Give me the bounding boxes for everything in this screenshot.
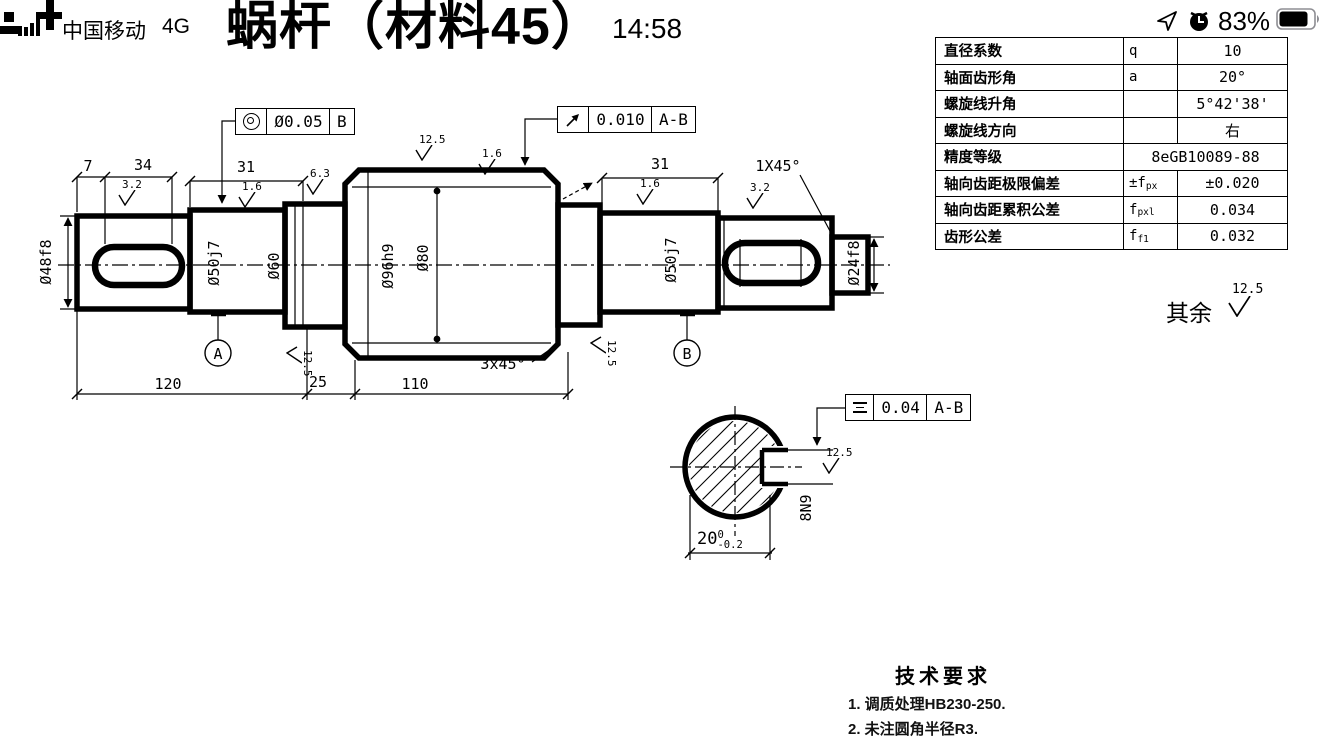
fcf-datum: A-B <box>651 106 696 133</box>
param-value: 5°42'38' <box>1178 91 1287 117</box>
remaining-surfaces-label: 其余 <box>1166 294 1212 328</box>
param-symbol: a <box>1124 65 1178 91</box>
roughness-check-icon <box>822 458 842 474</box>
param-symbol: ±fpx <box>1124 171 1178 197</box>
symmetry-icon <box>853 402 867 412</box>
screenshot-root: 中国移动 4G 蜗杆（材料45） 14:58 83% 直径系数 q 10 轴面齿… <box>0 0 1334 750</box>
roughness-value: 1.6 <box>640 179 660 189</box>
fcf-tolerance: Ø0.05 <box>266 108 330 135</box>
battery-percent-label: 83% <box>1218 6 1270 37</box>
roughness-check-icon <box>590 336 606 356</box>
param-label: 直径系数 <box>936 38 1124 64</box>
table-row: 轴面齿形角 a 20° <box>936 65 1287 92</box>
cutoff-text-fragment <box>4 12 14 22</box>
roughness-mark: 1.6 <box>238 182 268 208</box>
fcf-symmetry: 0.04 A-B <box>845 394 971 421</box>
roughness-value: 1.6 <box>482 149 502 159</box>
roughness-check-icon <box>118 190 138 206</box>
roughness-value: 12.5 <box>419 135 446 145</box>
roughness-check-icon <box>1228 296 1254 317</box>
dim-34: 34 <box>134 156 152 174</box>
roughness-check-icon <box>478 159 498 175</box>
fcf-datum: B <box>329 108 355 135</box>
page-title: 蜗杆（材料45） <box>226 0 604 59</box>
param-value: 0.034 <box>1178 197 1287 223</box>
roughness-value: 12.5 <box>1232 284 1263 296</box>
battery-icon <box>1276 8 1322 30</box>
param-value: 20° <box>1178 65 1287 91</box>
param-label: 齿形公差 <box>936 224 1124 250</box>
dim-20-toleranced: 20 0 -0.2 <box>697 531 743 550</box>
param-label: 螺旋线方向 <box>936 118 1124 144</box>
roughness-value: 12.5 <box>826 448 853 458</box>
dim-31-left: 31 <box>237 158 255 176</box>
dim-110: 110 <box>401 375 428 393</box>
tech-requirements-title: 技术要求 <box>895 660 991 689</box>
roughness-value: 12.5 <box>302 350 312 377</box>
param-label: 轴向齿距极限偏差 <box>936 171 1124 197</box>
roughness-mark: 12.5 <box>415 135 445 161</box>
dim-31-right: 31 <box>651 155 669 173</box>
alarm-clock-icon <box>1186 8 1212 34</box>
roughness-value: 1.6 <box>242 182 262 192</box>
dim-7: 7 <box>83 157 92 175</box>
signal-bars-icon <box>18 18 44 36</box>
table-row: 直径系数 q 10 <box>936 38 1287 65</box>
param-value: 10 <box>1178 38 1287 64</box>
carrier-label: 中国移动 <box>62 15 146 45</box>
roughness-mark: 12.5 <box>286 346 312 376</box>
param-label: 轴向齿距累积公差 <box>936 197 1124 223</box>
param-value: 右 <box>1178 118 1287 144</box>
roughness-mark: 1.6 <box>478 149 508 175</box>
roughness-check-icon <box>746 193 766 209</box>
roughness-mark-general: 12.5 <box>1228 284 1258 317</box>
roughness-value: 3.2 <box>750 183 770 193</box>
param-symbol <box>1124 91 1178 117</box>
param-symbol: fpxl <box>1124 197 1178 223</box>
roughness-check-icon <box>636 189 656 205</box>
table-row: 轴向齿距极限偏差 ±fpx ±0.020 <box>936 171 1287 198</box>
fcf-concentricity: Ø0.05 B <box>235 108 355 135</box>
roughness-mark: 3.2 <box>118 180 148 206</box>
table-row: 齿形公差 ff1 0.032 <box>936 224 1287 250</box>
roughness-mark: 6.3 <box>306 169 336 195</box>
dim-120: 120 <box>154 375 181 393</box>
param-value: ±0.020 <box>1178 171 1287 197</box>
concentricity-icon <box>243 113 260 130</box>
worm-parameters-table: 直径系数 q 10 轴面齿形角 a 20° 螺旋线升角 5°42'38' 螺旋线… <box>935 37 1288 250</box>
roughness-mark: 3.2 <box>746 183 776 209</box>
tech-requirement-item: 2. 未注圆角半径R3. <box>848 718 978 739</box>
dim-dia96: Ø96h9 <box>379 243 397 288</box>
roughness-value: 6.3 <box>310 169 330 179</box>
dim-dia48: Ø48f8 <box>37 239 55 284</box>
roughness-mark: 12.5 <box>590 336 616 366</box>
roughness-mark: 12.5 <box>822 448 852 474</box>
param-value: 0.032 <box>1178 224 1287 250</box>
dim-dia80: Ø80 <box>414 244 432 271</box>
table-row: 螺旋线升角 5°42'38' <box>936 91 1287 118</box>
roughness-value: 12.5 <box>606 340 616 367</box>
network-type-label: 4G <box>162 15 190 39</box>
roughness-mark: 1.6 <box>636 179 666 205</box>
fcf-circular-runout: 0.010 A-B <box>557 106 696 133</box>
tech-requirement-item: 1. 调质处理HB230-250. <box>848 693 1006 714</box>
roughness-check-icon <box>238 192 258 208</box>
param-symbol: q <box>1124 38 1178 64</box>
param-label: 精度等级 <box>936 144 1124 170</box>
roughness-check-icon <box>306 179 326 195</box>
location-arrow-icon <box>1156 10 1178 32</box>
clock-label: 14:58 <box>612 13 682 45</box>
dim-dia24: Ø24f8 <box>845 240 863 285</box>
roughness-check-icon <box>415 145 435 161</box>
param-symbol <box>1124 118 1178 144</box>
datum-a-label: A <box>213 345 222 363</box>
dim-chamfer-worm: 3x45° <box>480 355 525 373</box>
roughness-check-icon <box>286 346 302 366</box>
fcf-datum: A-B <box>926 394 971 421</box>
table-row: 螺旋线方向 右 <box>936 118 1287 145</box>
table-row: 精度等级 8eGB10089-88 <box>936 144 1287 171</box>
dim-dia50-left: Ø50j7 <box>205 240 223 285</box>
dim-chamfer-right: 1X45° <box>755 157 800 175</box>
table-row: 轴向齿距累积公差 fpxl 0.034 <box>936 197 1287 224</box>
dim-keyway-8n9: 8N9 <box>797 494 815 521</box>
circular-runout-icon <box>565 111 582 128</box>
dim-dia50-right: Ø50j7 <box>662 237 680 282</box>
param-label: 轴面齿形角 <box>936 65 1124 91</box>
param-symbol: ff1 <box>1124 224 1178 250</box>
fcf-tolerance: 0.04 <box>873 394 928 421</box>
fcf-tolerance: 0.010 <box>588 106 652 133</box>
param-label: 螺旋线升角 <box>936 91 1124 117</box>
roughness-value: 3.2 <box>122 180 142 190</box>
param-value: 8eGB10089-88 <box>1124 144 1287 170</box>
dim-dia60: Ø60 <box>265 252 283 279</box>
datum-b-label: B <box>682 345 691 363</box>
